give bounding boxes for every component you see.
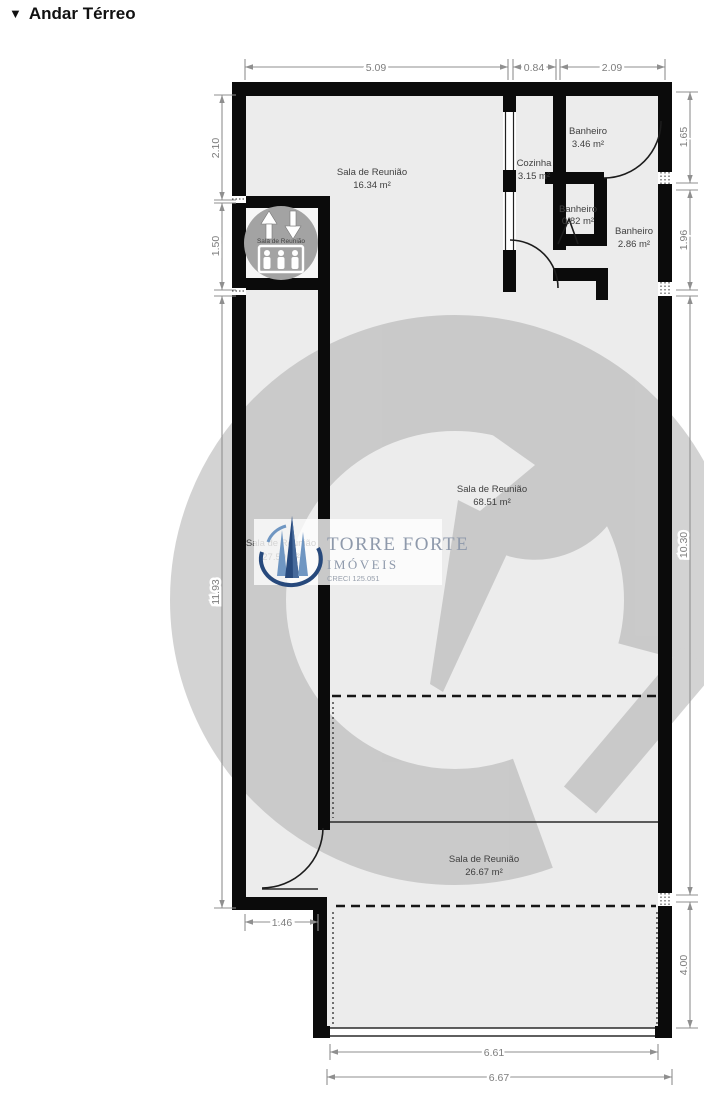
room-label-sala-6851-area: 68.51 m² bbox=[473, 497, 511, 508]
room-label-banheiro-082-area: 0.82 m² bbox=[562, 216, 594, 227]
room-label-banheiro-346-area: 3.46 m² bbox=[572, 139, 604, 150]
watermark-creci-text: CRECI 125.051 bbox=[327, 574, 380, 583]
dim-label-top-1: 0.84 bbox=[524, 62, 545, 74]
room-label-banheiro-286-name: Banheiro bbox=[615, 226, 653, 237]
elevator-icon: Sala de Reunião bbox=[244, 206, 318, 280]
room-label-cozinha-name: Cozinha bbox=[517, 158, 553, 169]
elevator-room-label: Sala de Reunião bbox=[257, 238, 305, 245]
room-label-banheiro-286-area: 2.86 m² bbox=[618, 239, 650, 250]
dim-label-bottom-2: 6.67 bbox=[489, 1072, 510, 1084]
watermark-brand-text: TORRE FORTE bbox=[327, 534, 469, 555]
watermark-sub-text: IMÓVEIS bbox=[327, 557, 399, 572]
dim-label-top-2: 2.09 bbox=[602, 62, 623, 74]
dim-label-right-0: 1.65 bbox=[678, 127, 690, 148]
room-label-sala-2667-name: Sala de Reunião bbox=[449, 854, 519, 865]
room-label-cozinha-area: 3.15 m² bbox=[518, 171, 550, 182]
dim-label-bottom-0: 1.46 bbox=[272, 917, 293, 929]
room-label-banheiro-082-name: Banheiro bbox=[559, 204, 597, 215]
room-label-sala-1634-area: 16.34 m² bbox=[353, 180, 391, 191]
room-label-sala-6851-name: Sala de Reunião bbox=[457, 484, 527, 495]
floor-plan-page: ▼ Andar Térreo bbox=[0, 0, 704, 1104]
room-label-sala-2667-area: 26.67 m² bbox=[465, 867, 503, 878]
dim-label-top-0: 5.09 bbox=[366, 62, 387, 74]
dim-label-right-1: 1.96 bbox=[678, 230, 690, 251]
floor-plan-svg: Sala de Reunião 16.34 m² Cozinha 3.15 m²… bbox=[0, 0, 704, 1104]
room-label-banheiro-346-name: Banheiro bbox=[569, 126, 607, 137]
dim-label-right-3: 4.00 bbox=[678, 955, 690, 976]
dim-label-right-2: 10.30 bbox=[678, 532, 690, 558]
dim-label-left-1: 1.50 bbox=[210, 236, 222, 257]
watermark-card: TORRE FORTE IMÓVEIS CRECI 125.051 bbox=[254, 516, 469, 585]
dim-label-bottom-1: 6.61 bbox=[484, 1047, 505, 1059]
dim-label-left-0: 2.10 bbox=[210, 138, 222, 159]
dim-label-left-2: 11.93 bbox=[210, 579, 222, 605]
room-label-sala-1634-name: Sala de Reunião bbox=[337, 167, 407, 178]
